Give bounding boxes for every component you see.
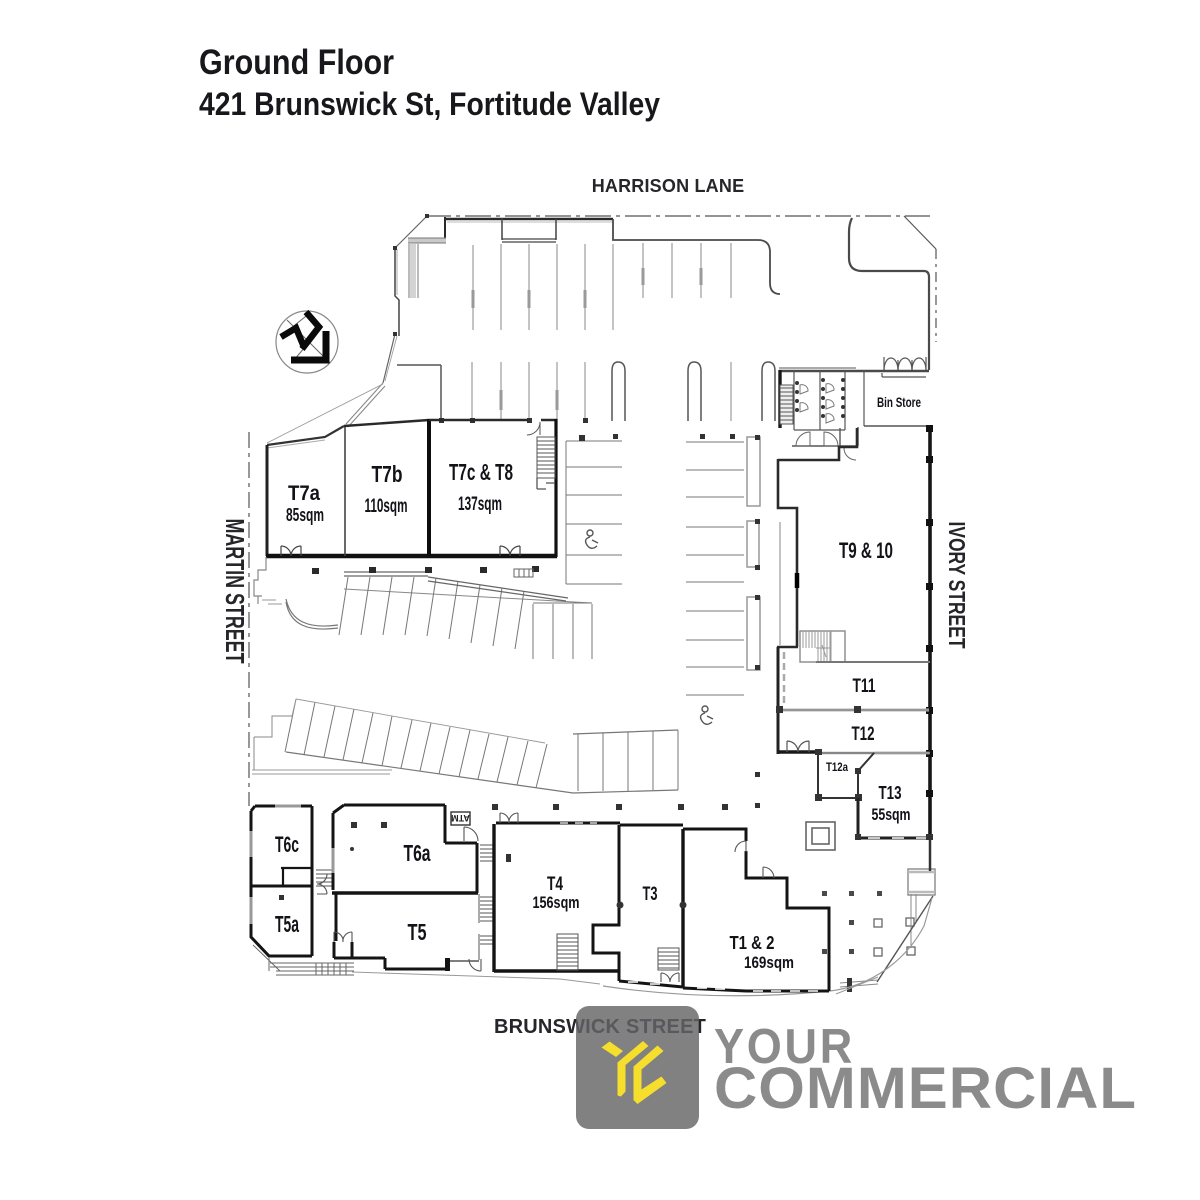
svg-text:Bin Store: Bin Store (877, 394, 921, 410)
svg-text:T9 & 10: T9 & 10 (839, 538, 893, 563)
svg-text:T3: T3 (643, 884, 658, 905)
svg-text:55sqm: 55sqm (872, 805, 911, 824)
svg-text:T7c & T8: T7c & T8 (449, 459, 513, 485)
svg-text:COMMERCIAL: COMMERCIAL (714, 1056, 1137, 1121)
svg-text:MARTIN STREET: MARTIN STREET (220, 519, 250, 664)
svg-text:T13: T13 (879, 782, 902, 803)
svg-text:T12: T12 (852, 724, 875, 745)
svg-text:IVORY STREET: IVORY STREET (944, 522, 970, 649)
svg-text:T5a: T5a (275, 911, 299, 937)
svg-text:T7a: T7a (288, 482, 320, 505)
svg-text:T5: T5 (408, 919, 427, 945)
svg-text:169sqm: 169sqm (744, 953, 794, 972)
svg-text:T12a: T12a (826, 760, 848, 774)
svg-text:T6c: T6c (275, 832, 299, 857)
svg-text:137sqm: 137sqm (458, 494, 502, 515)
svg-text:T7b: T7b (372, 461, 403, 487)
svg-text:T11: T11 (853, 676, 876, 697)
svg-text:ATM: ATM (451, 813, 470, 823)
svg-text:156sqm: 156sqm (533, 893, 580, 912)
svg-text:T6a: T6a (404, 840, 431, 866)
svg-text:421 Brunswick St, Fortitude Va: 421 Brunswick St, Fortitude Valley (199, 86, 660, 122)
svg-text:110sqm: 110sqm (365, 496, 408, 517)
svg-text:HARRISON LANE: HARRISON LANE (592, 176, 745, 196)
svg-text:Ground Floor: Ground Floor (199, 43, 394, 82)
svg-text:85sqm: 85sqm (286, 505, 324, 525)
svg-text:T4: T4 (547, 874, 563, 895)
svg-text:T1 & 2: T1 & 2 (730, 933, 775, 953)
